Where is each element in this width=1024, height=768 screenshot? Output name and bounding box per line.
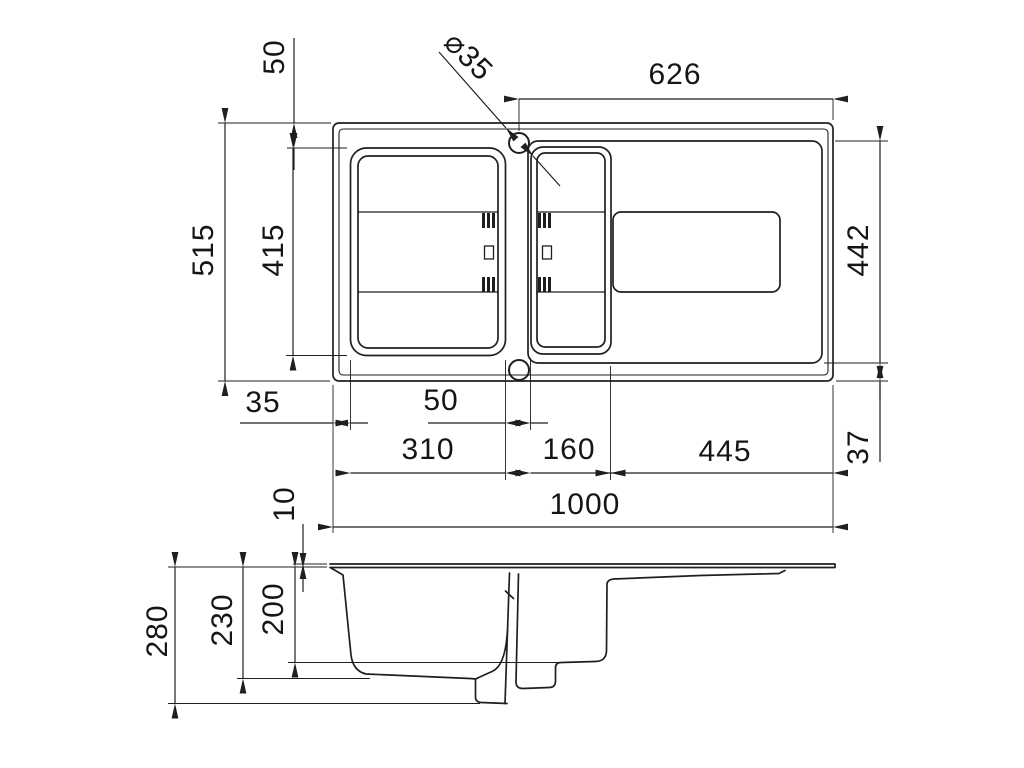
dim-main-bowl-depth: 230 [208,593,238,646]
plan-view-sink-outline [333,123,833,381]
right-section-rim [528,141,822,363]
faucet-hole-bottom [509,360,529,380]
dim-top-margin: 50 [260,39,290,74]
dim-left-margin: 35 [245,388,280,418]
sink-rim-inner-edge [339,129,828,375]
dim-main-bowl-length: 415 [259,223,289,276]
main-bowl-frame [351,148,506,356]
main-bowl-inner [358,156,498,348]
main-bowl-right-fillet [476,630,508,679]
small-bowl-inner [537,153,605,347]
dim-small-bowl-depth: 200 [259,582,289,635]
faucet-hole-top [509,133,529,153]
worktop-rim-lines [330,564,835,568]
faucet-holes [509,133,529,380]
dim-overall-width: 1000 [550,490,621,520]
overflow-level-lines [358,212,605,292]
dim-rim-height: 10 [270,486,300,521]
dim-overall-height: 280 [143,604,173,657]
overflow-hatches [482,213,552,292]
small-bowl-and-drainer-profile [516,571,785,689]
dim-bottom-margin: 37 [844,429,874,464]
main-bowl-profile [331,568,507,704]
sink-outer-edge [333,123,833,381]
dim-small-bowl-width: 160 [542,435,595,465]
dim-drainer-width: 445 [698,437,751,467]
dim-inner-length: 442 [844,223,874,276]
dim-main-bowl-width: 310 [401,435,454,465]
dim-bowl-gap: 50 [423,386,458,416]
section-view-outline [330,564,835,704]
drainer-recess [613,212,780,292]
dim-right-section-width: 626 [648,60,701,90]
dim-overall-depth: 515 [189,223,219,276]
technical-drawing-canvas: 50 ⌀35 626 515 415 442 35 50 310 160 445… [0,0,1024,768]
